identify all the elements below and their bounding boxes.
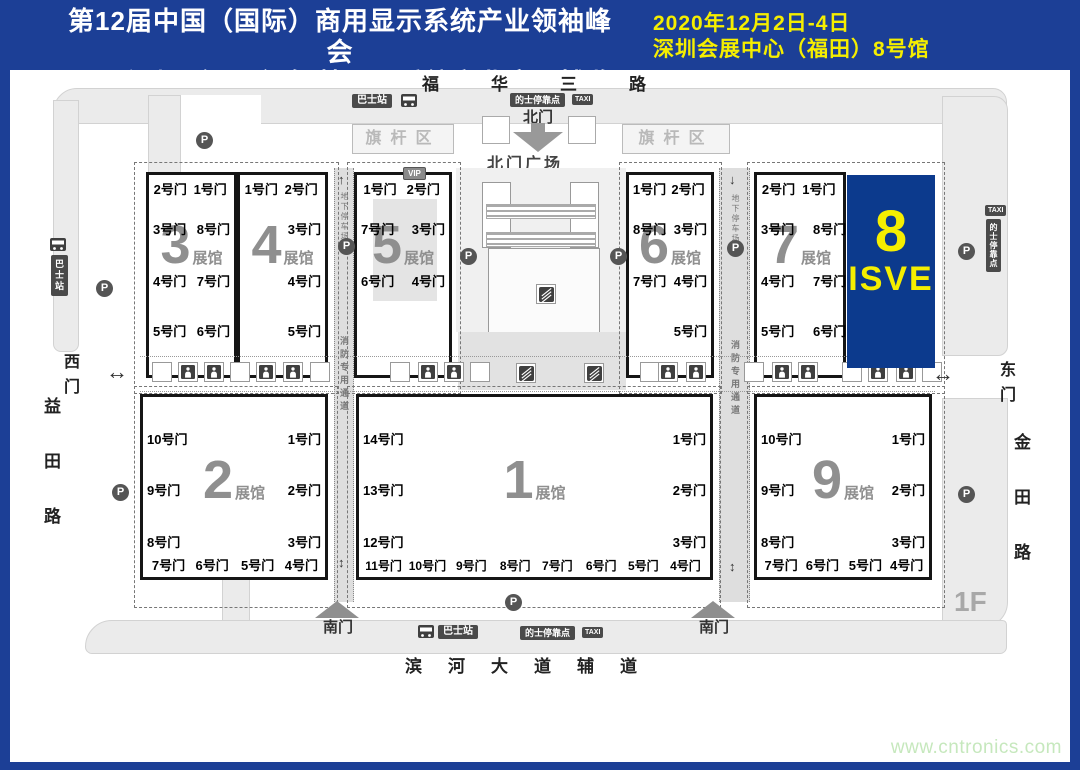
road-name-left: 益田路 <box>44 392 61 527</box>
restroom-icon <box>178 362 198 382</box>
gate-label: 6号门 <box>196 555 229 574</box>
doorway-box <box>152 362 172 382</box>
exhibition-map-page: 第12届中国（国际）商用显示系统产业领袖峰会 2020深圳（国际）智慧显示系统产… <box>0 0 1080 770</box>
parking-icon: P <box>958 243 975 260</box>
gate-label: 7号门 <box>633 271 666 290</box>
gate-label: 5号门 <box>288 321 321 340</box>
gate-label: 7号门 <box>152 555 185 574</box>
gate-label: 2号门 <box>407 179 440 198</box>
gate-label: 5号门 <box>153 321 186 340</box>
event-venue: 深圳会展中心（福田）8号馆 <box>653 37 930 63</box>
bus-station-bottom-badge: 巴士站 <box>438 625 478 639</box>
parking-icon: P <box>958 486 975 503</box>
plaza-stairs-lower <box>486 232 596 247</box>
gate-label: 2号门 <box>288 480 321 499</box>
gate-label: 6号门 <box>197 321 230 340</box>
gate-label: 1号门 <box>363 179 396 198</box>
restroom-icon <box>204 362 224 382</box>
gate-label: 13号门 <box>363 480 403 499</box>
gate-label: 2号门 <box>673 480 706 499</box>
road-name-top: 福华三路 <box>422 70 698 95</box>
south-gate-left-label: 南门 <box>323 616 353 637</box>
north-gate-booth-right <box>568 116 596 144</box>
escalator-icon <box>516 363 536 383</box>
west-gate-label: 西门 <box>64 348 80 397</box>
gate-label: 8号门 <box>813 219 846 238</box>
gate-label: 4号门 <box>890 555 923 574</box>
gate-label: 2号门 <box>285 179 318 198</box>
gate-label: 14号门 <box>363 429 403 448</box>
hall-number-label: 9展馆 <box>812 453 874 507</box>
gate-label: 4号门 <box>285 555 318 574</box>
gate-label: 7号门 <box>197 271 230 290</box>
north-gate-booth-left <box>482 116 510 144</box>
gate-label: 9号门 <box>147 480 180 499</box>
hall-number-suffix: 展馆 <box>536 482 566 503</box>
taxi-icon-top: TAXI <box>572 94 593 105</box>
restroom-icon <box>798 362 818 382</box>
hall-number-suffix: 展馆 <box>284 247 314 268</box>
parking-icon: P <box>505 594 522 611</box>
gate-label: 8号门 <box>147 532 180 551</box>
hall-number: 9 <box>812 453 842 507</box>
doorway-box <box>470 362 490 382</box>
gate-label: 8号门 <box>500 557 531 574</box>
gate-label: 2号门 <box>154 179 187 198</box>
gate-label: 1号门 <box>802 179 835 198</box>
hall-number-suffix: 展馆 <box>235 482 265 503</box>
hall-5: 5展馆VIP1号门2号门7号门6号门3号门4号门 <box>354 172 452 378</box>
parking-icon: P <box>460 248 477 265</box>
gate-label: 10号门 <box>409 557 446 574</box>
hall-8-highlight: 8 ISVE <box>847 175 935 368</box>
gate-label: 1号门 <box>892 429 925 448</box>
watermark: www.cntronics.com <box>891 737 1062 759</box>
gate-label: 6号门 <box>361 271 394 290</box>
hall-number: 4 <box>251 218 281 272</box>
corridor-east-arrow-ud-icon: ↕ <box>729 560 736 573</box>
hall-number-label: 1展馆 <box>503 453 565 507</box>
gate-label: 3号门 <box>761 219 794 238</box>
north-gate-arrow-icon <box>513 132 563 152</box>
doorway-box <box>640 362 660 382</box>
gate-label: 6号门 <box>586 557 617 574</box>
bus-icon <box>401 94 417 112</box>
doorway-box <box>310 362 330 382</box>
gate-label: 5号门 <box>241 555 274 574</box>
gate-label: 3号门 <box>412 219 445 238</box>
restroom-icon <box>444 362 464 382</box>
restroom-icon <box>256 362 276 382</box>
gate-label: 8号门 <box>197 219 230 238</box>
hall-number-suffix: 展馆 <box>404 247 434 268</box>
escalator-icon <box>536 284 556 304</box>
gate-label: 7号门 <box>361 219 394 238</box>
north-gate-arrow-stem <box>531 123 545 132</box>
event-title-line1: 第12届中国（国际）商用显示系统产业领袖峰会 <box>62 6 618 68</box>
gate-label: 6号门 <box>813 321 846 340</box>
vip-badge: VIP <box>403 167 426 180</box>
gate-label: 11号门 <box>365 557 402 574</box>
doorway-box <box>390 362 410 382</box>
gate-label: 8号门 <box>633 219 666 238</box>
gate-label: 4号门 <box>761 271 794 290</box>
taxi-icon-east: TAXI <box>985 205 1006 216</box>
gate-label: 4号门 <box>288 271 321 290</box>
restroom-icon <box>686 362 706 382</box>
hall-1: 1展馆14号门13号门12号门1号门2号门3号门11号门10号门9号门8号门7号… <box>356 394 713 580</box>
flag-area-left: 旗杆区 <box>352 124 454 154</box>
gate-label: 4号门 <box>153 271 186 290</box>
event-date: 2020年12月2日-4日 <box>653 11 930 37</box>
gate-label: 7号门 <box>542 557 573 574</box>
gate-label: 1号门 <box>288 429 321 448</box>
parking-icon: P <box>610 248 627 265</box>
hall-6: 6展馆1号门2号门8号门7号门3号门4号门5号门 <box>626 172 714 378</box>
gate-label: 5号门 <box>849 555 882 574</box>
road-name-bottom: 滨河大道辅道 <box>405 652 663 677</box>
gate-label: 2号门 <box>892 480 925 499</box>
gate-label: 3号门 <box>153 219 186 238</box>
gate-label: 8号门 <box>761 532 794 551</box>
gate-label: 6号门 <box>806 555 839 574</box>
taxi-stop-east-badge: 的士停靠点 <box>986 219 1001 272</box>
restroom-icon <box>658 362 678 382</box>
corridor-east-parking-label: 地下停车场 <box>730 194 741 244</box>
west-gate-arrow-icon: ↔ <box>106 362 128 382</box>
gate-label: 10号门 <box>761 429 801 448</box>
gate-label: 1号门 <box>673 429 706 448</box>
hall-2: 2展馆10号门9号门8号门1号门2号门3号门7号门6号门5号门4号门 <box>140 394 328 580</box>
hall-8-brand: ISVE <box>848 261 933 298</box>
parking-icon: P <box>338 238 355 255</box>
gate-label: 3号门 <box>673 532 706 551</box>
escalator-icon <box>584 363 604 383</box>
road-name-right: 金田路 <box>1014 428 1031 563</box>
bus-station-top-badge: 巴士站 <box>352 94 392 108</box>
gate-label: 3号门 <box>674 219 707 238</box>
gate-label: 2号门 <box>671 179 704 198</box>
gate-label: 4号门 <box>670 557 701 574</box>
restroom-icon <box>772 362 792 382</box>
hall-number-suffix: 展馆 <box>844 482 874 503</box>
taxi-stop-bottom-badge: 的士停靠点 <box>520 626 575 640</box>
corridor-west-arrow-ud-icon: ↕ <box>338 556 345 569</box>
event-date-venue: 2020年12月2日-4日 深圳会展中心（福田）8号馆 <box>653 11 930 63</box>
bus-icon-bottom <box>418 625 434 643</box>
hall-number-suffix: 展馆 <box>801 247 831 268</box>
floor-indicator: 1F <box>954 586 987 618</box>
gate-label: 3号门 <box>892 532 925 551</box>
gate-label: 1号门 <box>633 179 666 198</box>
hall-number-suffix: 展馆 <box>671 247 701 268</box>
gate-label: 5号门 <box>761 321 794 340</box>
bus-icon-west <box>50 238 66 256</box>
gate-label: 9号门 <box>456 557 487 574</box>
doorway-box <box>230 362 250 382</box>
gate-label: 7号门 <box>764 555 797 574</box>
bus-station-west-badge: 巴士站 <box>51 255 68 296</box>
gate-label: 1号门 <box>194 179 227 198</box>
gate-label: 5号门 <box>674 321 707 340</box>
gate-label: 12号门 <box>363 532 403 551</box>
gate-label: 3号门 <box>288 219 321 238</box>
taxi-icon-bottom: TAXI <box>582 627 603 638</box>
gate-label: 10号门 <box>147 429 187 448</box>
gate-label: 9号门 <box>761 480 794 499</box>
gate-label: 7号门 <box>813 271 846 290</box>
plaza-stairs-upper <box>486 204 596 219</box>
east-gate-label: 东门 <box>1000 356 1016 405</box>
corridor-east-arrow-down-icon: ↓ <box>729 173 736 186</box>
gate-label: 4号门 <box>412 271 445 290</box>
restroom-icon <box>283 362 303 382</box>
hall-number-suffix: 展馆 <box>193 247 223 268</box>
hall-3: 3展馆2号门1号门3号门4号门5号门8号门7号门6号门 <box>146 172 237 378</box>
flag-area-right: 旗杆区 <box>622 124 730 154</box>
doorway-box <box>744 362 764 382</box>
east-gate-arrow-icon: ↔ <box>932 364 954 384</box>
gate-label: 1号门 <box>245 179 278 198</box>
south-gate-right-label: 南门 <box>699 616 729 637</box>
hall-9: 9展馆10号门9号门8号门1号门2号门3号门7号门6号门5号门4号门 <box>754 394 932 580</box>
hall-4: 4展馆1号门2号门3号门4号门5号门 <box>237 172 328 378</box>
gate-label: 2号门 <box>762 179 795 198</box>
hall-number: 2 <box>203 453 233 507</box>
parking-icon: P <box>196 132 213 149</box>
hall-number-label: 2展馆 <box>203 453 265 507</box>
parking-icon: P <box>112 484 129 501</box>
restroom-icon <box>418 362 438 382</box>
taxi-stop-top-badge: 的士停靠点 <box>510 93 565 107</box>
parking-icon: P <box>96 280 113 297</box>
hall-7: 7展馆2号门1号门3号门4号门5号门8号门7号门6号门 <box>754 172 846 378</box>
parking-icon: P <box>727 240 744 257</box>
hall-number: 1 <box>503 453 533 507</box>
gate-label: 4号门 <box>674 271 707 290</box>
hall-8-number: 8 <box>875 203 907 261</box>
gate-label: 5号门 <box>628 557 659 574</box>
road-band-left-outer <box>53 100 79 352</box>
gate-label: 3号门 <box>288 532 321 551</box>
